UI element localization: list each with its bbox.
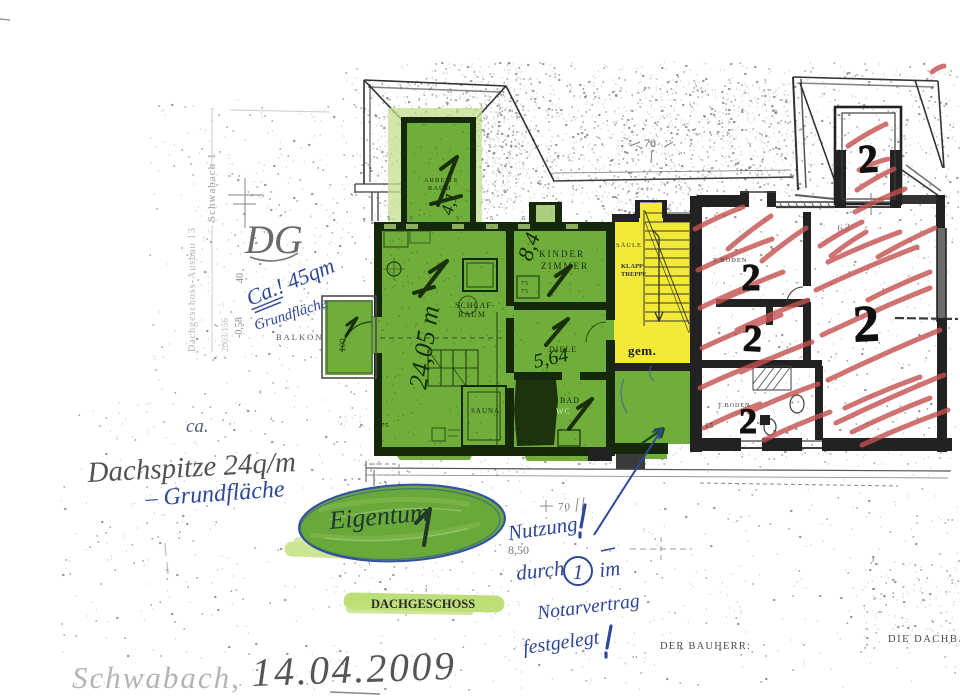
svg-text:KINDER: KINDER: [539, 249, 585, 259]
svg-text:2: 2: [852, 295, 881, 353]
svg-text:im: im: [598, 556, 621, 582]
svg-text:BALKON: BALKON: [276, 332, 323, 342]
svg-text:5: 5: [522, 216, 526, 222]
svg-text:SAUNA: SAUNA: [471, 407, 500, 415]
svg-text:gem.: gem.: [628, 343, 656, 358]
svg-text:Dachgeschoss-Ausbau 13: Dachgeschoss-Ausbau 13: [187, 227, 198, 352]
svg-text:KLAPP-: KLAPP-: [621, 263, 645, 270]
svg-text:SÄULE: SÄULE: [616, 242, 642, 249]
svg-text:75: 75: [521, 281, 529, 287]
svg-text:TREPPE: TREPPE: [621, 271, 647, 278]
svg-text:75: 75: [381, 422, 390, 429]
svg-text:BAD: BAD: [560, 396, 580, 405]
svg-text:75: 75: [519, 374, 527, 380]
svg-text:durch: durch: [515, 556, 565, 585]
svg-text:70: 70: [558, 501, 571, 513]
svg-text:15: 15: [705, 422, 714, 430]
svg-text:SCHLAF-: SCHLAF-: [455, 301, 495, 310]
svg-text:DER BAUHERR:: DER BAUHERR:: [660, 641, 751, 652]
svg-text:5: 5: [410, 216, 414, 222]
svg-text:Schwabach,: Schwabach,: [72, 660, 241, 695]
svg-text:ARBEITS: ARBEITS: [424, 177, 458, 184]
svg-text:DIE DACHBAU: DIE DACHBAU: [888, 634, 960, 645]
svg-text:1: 1: [573, 560, 584, 584]
svg-text:RAUM: RAUM: [428, 185, 452, 192]
svg-text:100: 100: [337, 338, 348, 353]
svg-text:70: 70: [644, 136, 656, 150]
svg-text:WC: WC: [556, 407, 571, 416]
svg-text:8,50: 8,50: [508, 543, 529, 557]
svg-text:2003/156: 2003/156: [220, 317, 230, 352]
svg-text:DACHGESCHOSS: DACHGESCHOSS: [371, 597, 475, 611]
svg-text:ZIMMER: ZIMMER: [541, 261, 589, 271]
svg-text:75: 75: [521, 289, 529, 295]
svg-text:-0,58: -0,58: [234, 317, 245, 338]
svg-text:Schwabach 1: Schwabach 1: [206, 153, 218, 222]
svg-text:ca.: ca.: [186, 416, 209, 437]
svg-text:40: 40: [235, 273, 246, 283]
svg-text:2: 2: [742, 318, 763, 361]
svg-text:14.04.2009: 14.04.2009: [251, 643, 457, 695]
svg-text:5: 5: [490, 216, 494, 222]
svg-text:75: 75: [519, 381, 527, 387]
svg-text:5: 5: [387, 216, 391, 222]
svg-text:2: 2: [857, 135, 880, 181]
svg-text:RAUM: RAUM: [458, 310, 486, 319]
svg-text:T.BODEN: T.BODEN: [718, 403, 750, 409]
svg-text:T.BODEN: T.BODEN: [713, 257, 748, 264]
svg-text:5: 5: [456, 216, 460, 222]
